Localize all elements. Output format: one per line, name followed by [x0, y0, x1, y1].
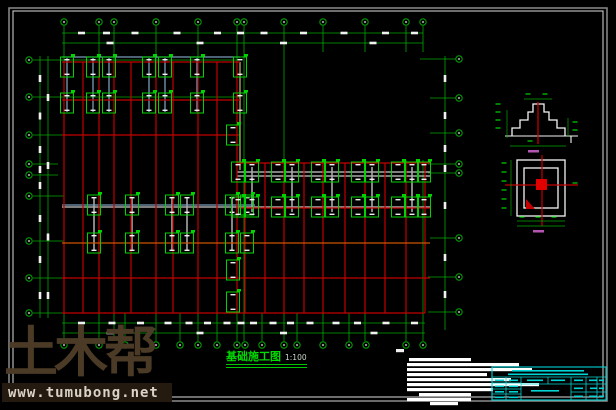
plan-title: 基础施工图1:100 [226, 347, 307, 368]
watermark-logo: 土木帮 [4, 326, 154, 380]
secondary-beams [62, 57, 430, 250]
plan-title-text: 基础施工图 [226, 350, 281, 363]
watermark-url: www.tumubong.net [2, 385, 159, 401]
footing-section-detail [496, 93, 579, 152]
cad-viewport[interactable]: 基础施工图1:100 土木帮 www.tumubong.net [0, 0, 616, 410]
plan-scale-text: 1:100 [285, 353, 307, 362]
pile-caps [61, 54, 433, 312]
watermark-band: www.tumubong.net [2, 383, 172, 402]
footing-plan-detail [502, 155, 579, 233]
